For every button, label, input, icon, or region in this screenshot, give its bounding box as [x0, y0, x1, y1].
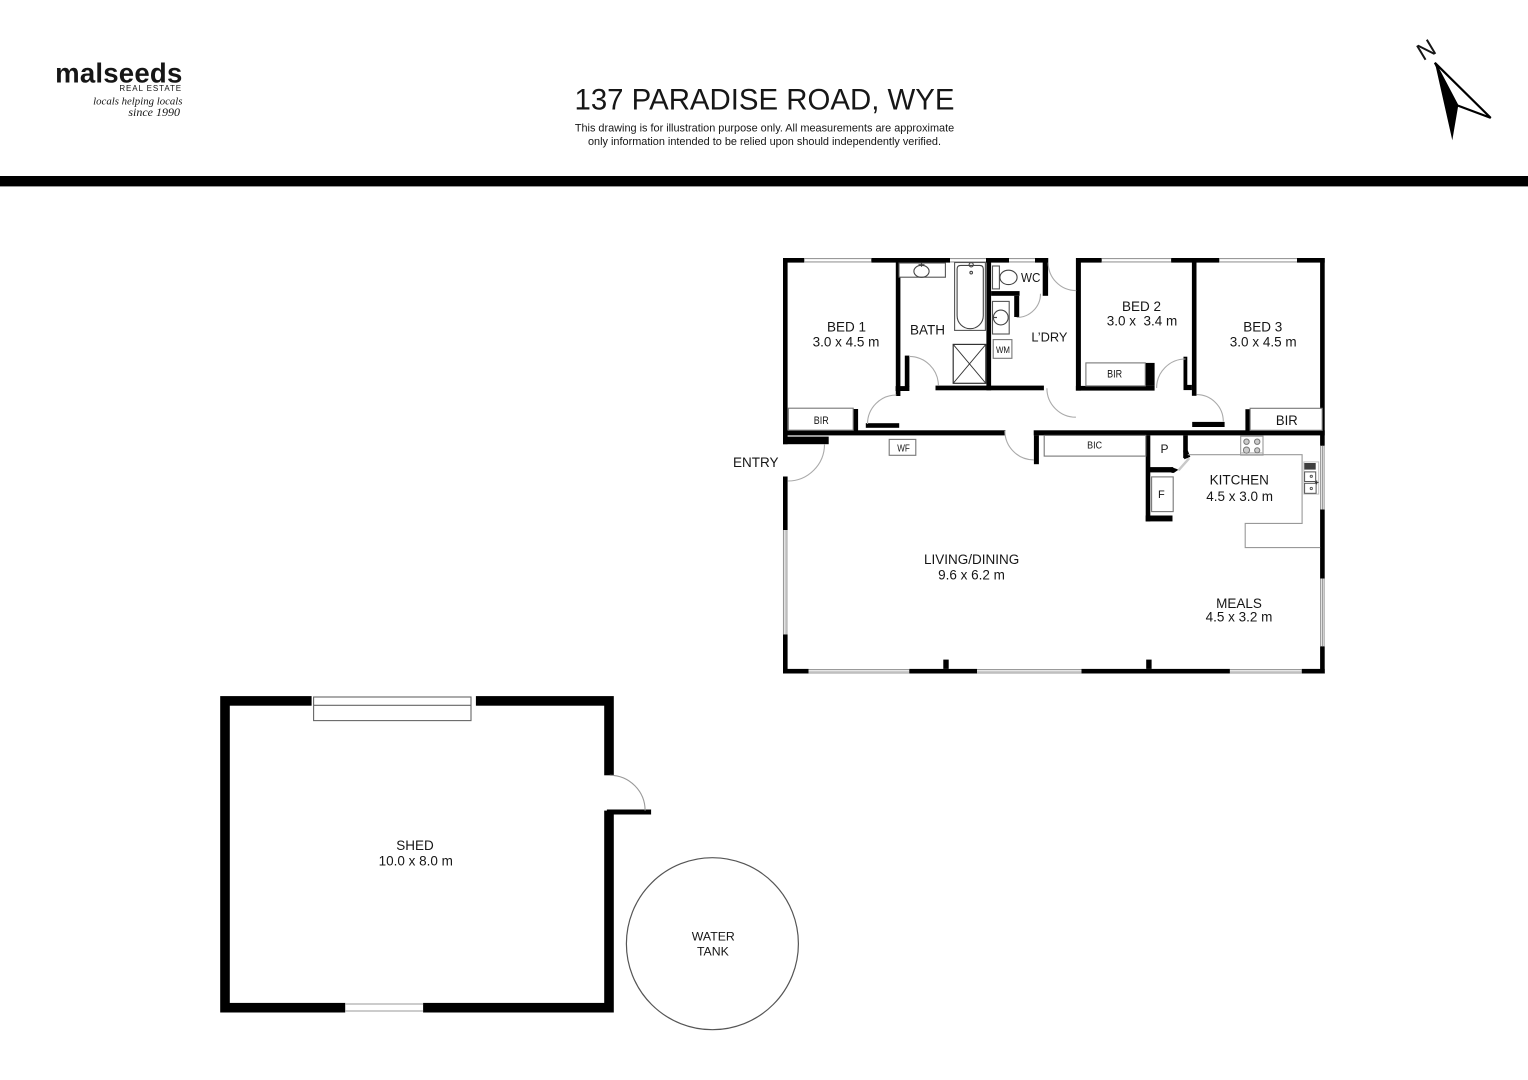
svg-text:WM: WM: [996, 345, 1010, 356]
svg-text:since 1990: since 1990: [128, 105, 180, 119]
svg-text:3.0 x 4.5 m: 3.0 x 4.5 m: [1230, 334, 1297, 349]
svg-text:3.0 x 3.4 m: 3.0 x 3.4 m: [1107, 314, 1178, 329]
svg-text:KITCHEN: KITCHEN: [1210, 473, 1269, 488]
svg-text:WATER: WATER: [692, 930, 735, 944]
svg-text:MEALS: MEALS: [1216, 596, 1262, 611]
svg-text:BIR: BIR: [814, 415, 829, 427]
svg-text:9.6 x 6.2 m: 9.6 x 6.2 m: [938, 568, 1005, 583]
svg-text:BIR: BIR: [1276, 412, 1298, 428]
svg-text:P: P: [1160, 442, 1168, 456]
svg-text:F: F: [1158, 489, 1165, 501]
svg-text:137 PARADISE ROAD, WYE: 137 PARADISE ROAD, WYE: [574, 84, 954, 117]
svg-text:BIC: BIC: [1087, 439, 1102, 451]
svg-text:SHED: SHED: [396, 838, 434, 853]
svg-text:10.0 x 8.0 m: 10.0 x 8.0 m: [379, 854, 453, 869]
svg-text:TANK: TANK: [697, 945, 730, 959]
svg-text:WC: WC: [1021, 270, 1040, 285]
svg-text:REAL ESTATE: REAL ESTATE: [119, 84, 182, 93]
svg-text:LIVING/DINING: LIVING/DINING: [924, 552, 1019, 567]
svg-text:4.5 x 3.2 m: 4.5 x 3.2 m: [1206, 610, 1273, 625]
svg-text:ENTRY: ENTRY: [733, 455, 779, 470]
svg-text:4.5 x 3.0 m: 4.5 x 3.0 m: [1206, 489, 1273, 504]
svg-text:BED 3: BED 3: [1243, 320, 1282, 335]
svg-text:BED 1: BED 1: [827, 319, 866, 334]
svg-text:L’DRY: L’DRY: [1031, 330, 1067, 345]
svg-text:This drawing is for illustrati: This drawing is for illustration purpose…: [575, 123, 954, 135]
svg-text:BIR: BIR: [1107, 369, 1122, 381]
svg-text:3.0 x 4.5 m: 3.0 x 4.5 m: [813, 335, 880, 350]
svg-text:BED 2: BED 2: [1122, 299, 1161, 314]
svg-text:only information intended to b: only information intended to be relied u…: [588, 136, 941, 148]
svg-text:WF: WF: [897, 443, 910, 454]
svg-text:BATH: BATH: [910, 323, 945, 338]
